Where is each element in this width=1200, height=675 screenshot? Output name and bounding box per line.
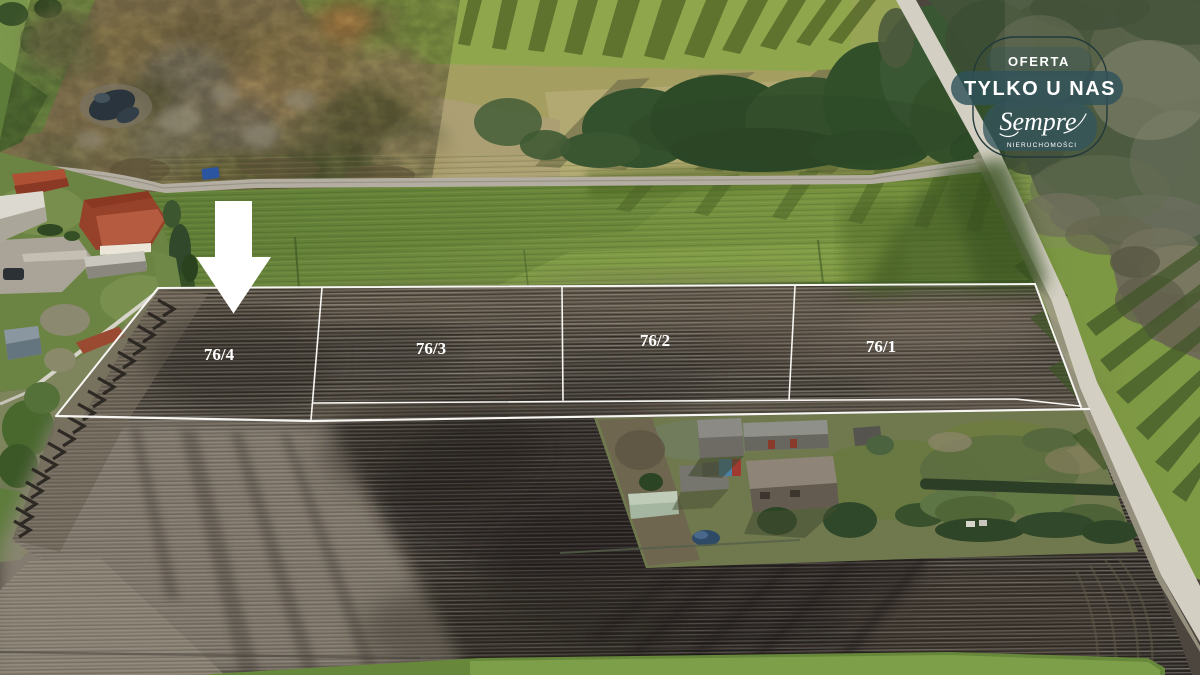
svg-text:76/3: 76/3: [416, 339, 446, 358]
svg-text:76/1: 76/1: [866, 337, 896, 356]
svg-text:OFERTA: OFERTA: [1008, 54, 1070, 69]
svg-text:76/2: 76/2: [640, 331, 670, 350]
svg-text:76/4: 76/4: [204, 345, 235, 364]
svg-text:Sempre: Sempre: [999, 107, 1076, 136]
svg-text:TYLKO U NAS: TYLKO U NAS: [964, 78, 1116, 100]
svg-text:NIERUCHOMOŚCI: NIERUCHOMOŚCI: [1007, 140, 1077, 149]
